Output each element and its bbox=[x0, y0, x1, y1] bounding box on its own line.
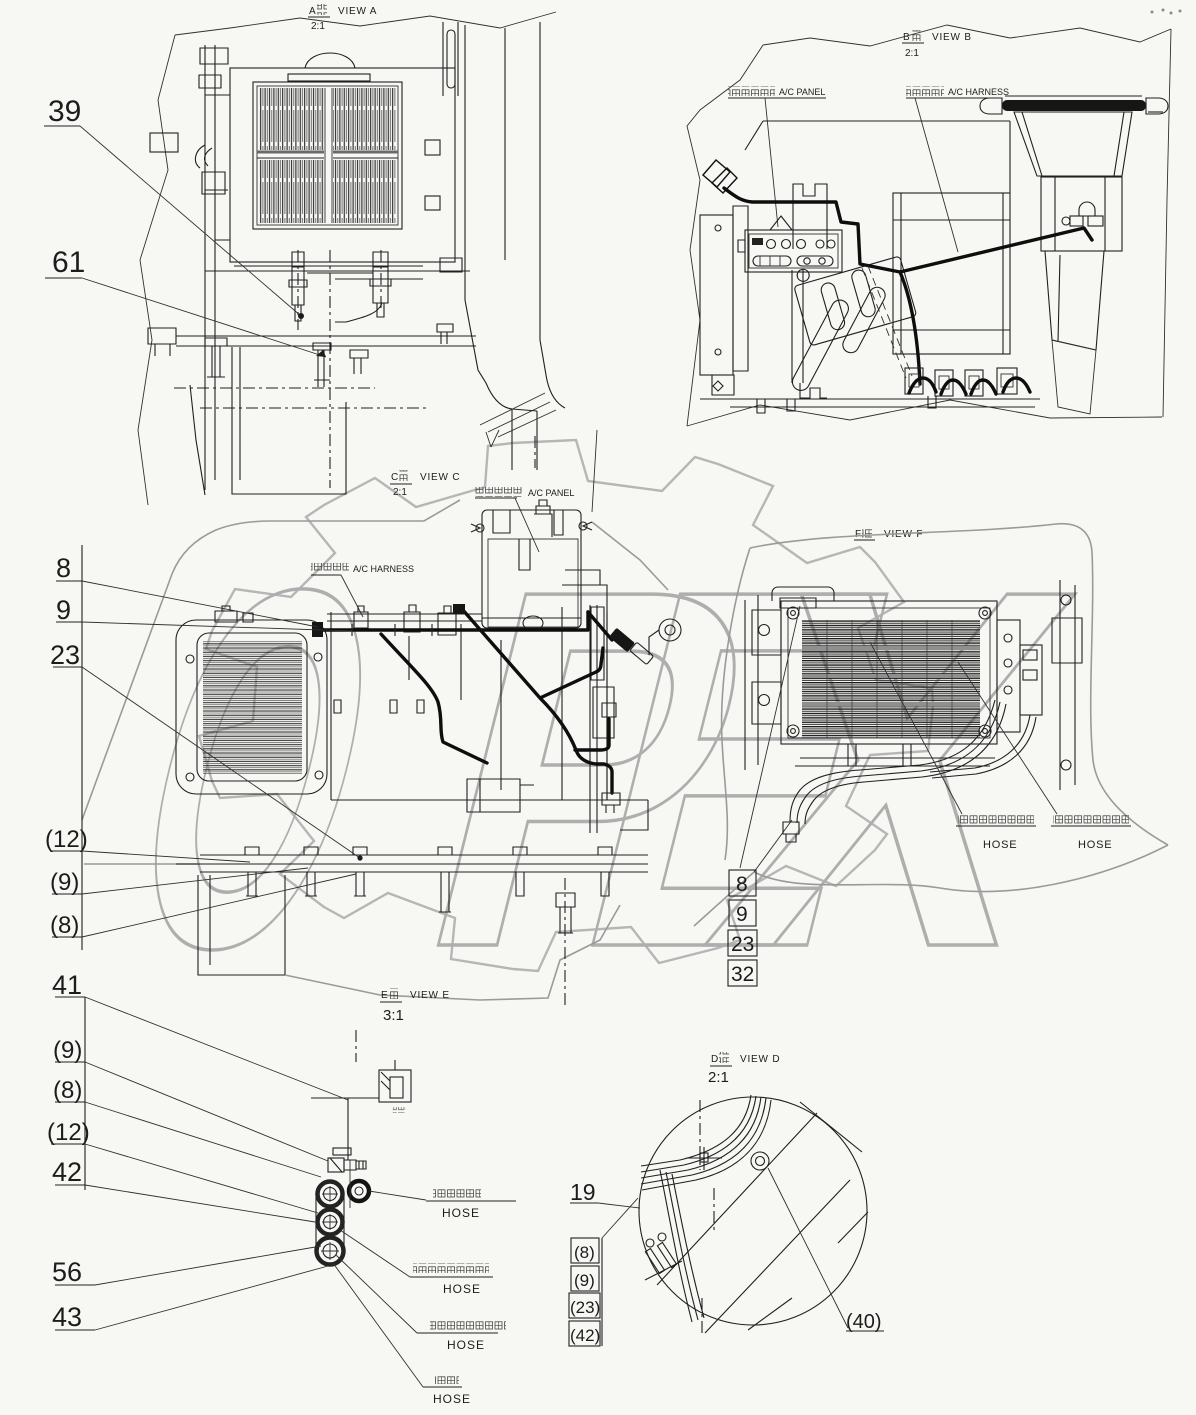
svg-text:VIEW E: VIEW E bbox=[410, 990, 450, 1001]
svg-text:VIEW D: VIEW D bbox=[740, 1054, 780, 1065]
svg-text:39: 39 bbox=[48, 95, 81, 128]
svg-text:(8): (8) bbox=[574, 1243, 595, 1262]
svg-text:2:1: 2:1 bbox=[708, 1069, 729, 1086]
svg-text:2:1: 2:1 bbox=[905, 48, 919, 59]
svg-text:23: 23 bbox=[50, 640, 80, 670]
svg-text:9: 9 bbox=[736, 903, 748, 926]
svg-text:HOSE: HOSE bbox=[442, 1206, 480, 1220]
svg-text:C: C bbox=[391, 472, 398, 483]
svg-text:F: F bbox=[855, 529, 861, 540]
svg-text:9: 9 bbox=[56, 595, 71, 625]
svg-text:A/C PANEL: A/C PANEL bbox=[779, 87, 825, 97]
svg-text:HOSE: HOSE bbox=[1078, 839, 1112, 851]
svg-text:43: 43 bbox=[52, 1302, 82, 1332]
svg-text:HOSE: HOSE bbox=[443, 1282, 481, 1296]
svg-text:B: B bbox=[903, 32, 910, 43]
svg-text:2:1: 2:1 bbox=[393, 487, 407, 498]
svg-text:D: D bbox=[711, 1054, 718, 1065]
svg-text:(9): (9) bbox=[50, 869, 79, 896]
svg-text:8: 8 bbox=[736, 873, 748, 896]
svg-text:(12): (12) bbox=[47, 1119, 90, 1146]
svg-text:A/C PANEL: A/C PANEL bbox=[528, 488, 574, 498]
svg-text:(9): (9) bbox=[574, 1271, 595, 1290]
svg-text:VIEW A: VIEW A bbox=[338, 6, 377, 17]
svg-text:HOSE: HOSE bbox=[983, 839, 1017, 851]
svg-text:(40): (40) bbox=[846, 1311, 882, 1333]
svg-text:41: 41 bbox=[52, 970, 82, 1000]
svg-text:8: 8 bbox=[56, 553, 71, 583]
svg-text:23: 23 bbox=[731, 933, 754, 956]
svg-text:(9): (9) bbox=[53, 1037, 82, 1064]
svg-text:56: 56 bbox=[52, 1257, 82, 1287]
svg-text:A/C HARNESS: A/C HARNESS bbox=[353, 564, 414, 574]
svg-text:32: 32 bbox=[731, 963, 754, 986]
svg-text:(23): (23) bbox=[570, 1298, 600, 1317]
svg-text:61: 61 bbox=[52, 246, 85, 279]
svg-text:HOSE: HOSE bbox=[433, 1392, 471, 1406]
svg-text:A/C HARNESS: A/C HARNESS bbox=[948, 87, 1009, 97]
svg-text:(42): (42) bbox=[570, 1326, 600, 1345]
svg-text:19: 19 bbox=[570, 1179, 596, 1205]
svg-text:(8): (8) bbox=[50, 912, 79, 939]
svg-text:VIEW C: VIEW C bbox=[420, 472, 460, 483]
svg-text:VIEW B: VIEW B bbox=[932, 32, 972, 43]
svg-text:3:1: 3:1 bbox=[383, 1007, 404, 1024]
svg-text:A: A bbox=[309, 6, 316, 17]
svg-text:(12): (12) bbox=[45, 826, 88, 853]
svg-text:42: 42 bbox=[52, 1157, 82, 1187]
svg-text:HOSE: HOSE bbox=[447, 1338, 485, 1352]
svg-text:(8): (8) bbox=[53, 1077, 82, 1104]
svg-text:2:1: 2:1 bbox=[311, 21, 325, 32]
svg-text:E: E bbox=[381, 990, 388, 1001]
